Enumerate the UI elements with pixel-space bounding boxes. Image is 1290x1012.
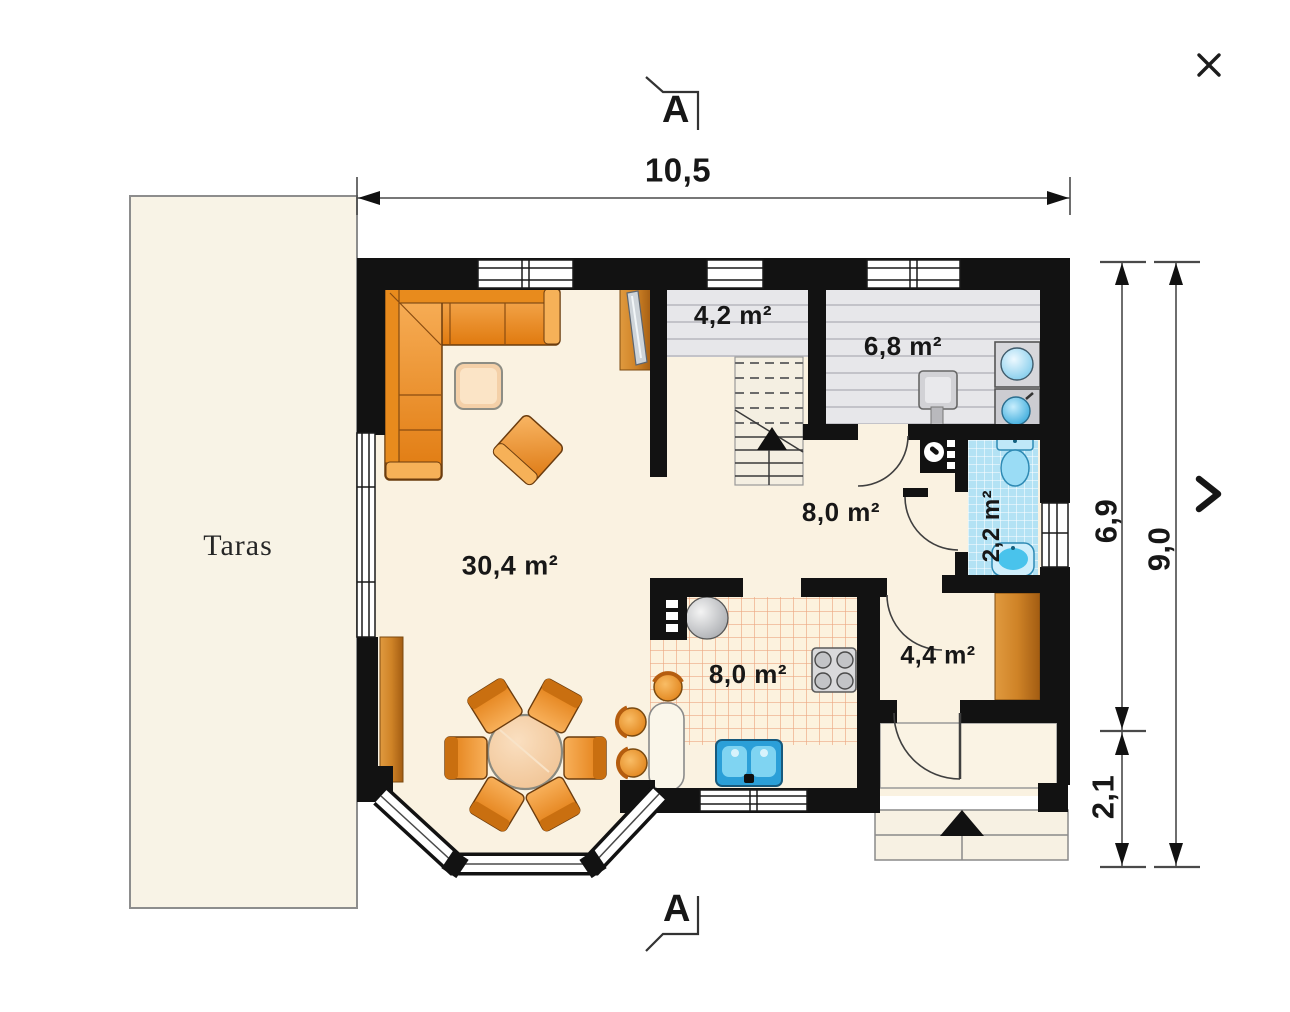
dimension-right-upper: 6,9 — [1091, 499, 1122, 544]
room-label-utility: 6,8 m² — [864, 333, 942, 359]
dimension-right-lower: 2,1 — [1088, 775, 1119, 820]
window-left — [357, 433, 375, 637]
window-top-1 — [478, 260, 573, 288]
window-right — [1042, 503, 1068, 567]
entry-steps — [875, 810, 1068, 860]
cabinet — [380, 637, 403, 782]
room-label-hall: 8,0 m² — [802, 499, 880, 525]
dimension-right-total: 9,0 — [1144, 527, 1175, 572]
room-label-landing: 4,2 m² — [694, 302, 772, 328]
wardrobe-closet — [995, 593, 1040, 700]
close-icon[interactable] — [1192, 48, 1226, 82]
room-label-living: 30,4 m² — [462, 553, 559, 580]
window-top-3 — [867, 260, 960, 288]
window-top-2 — [707, 260, 763, 288]
section-marker-top-label: A — [662, 91, 690, 129]
bar-counter — [649, 703, 684, 791]
mirror-shelf — [620, 287, 652, 370]
stove — [812, 648, 856, 692]
porch — [880, 723, 1057, 788]
next-chevron-icon[interactable] — [1190, 472, 1228, 516]
terrace-label: Taras — [203, 531, 273, 561]
coffee-table — [455, 363, 502, 409]
window-kitchen — [700, 790, 807, 811]
staircase — [735, 357, 803, 485]
fridge — [686, 597, 728, 639]
dimension-top-width: 10,5 — [645, 154, 711, 187]
section-marker-bottom-label: A — [663, 890, 691, 928]
room-label-kitchen: 8,0 m² — [709, 661, 787, 687]
floor-plan-viewer: Taras 30,4 m² 4,2 m² 6,8 m² 8,0 m² 2,2 m… — [0, 0, 1290, 1012]
kitchen-sink — [716, 740, 782, 786]
room-label-wc: 2,2 m² — [980, 490, 1004, 562]
room-label-wardrobe: 4,4 m² — [900, 644, 975, 669]
washer — [995, 342, 1040, 387]
